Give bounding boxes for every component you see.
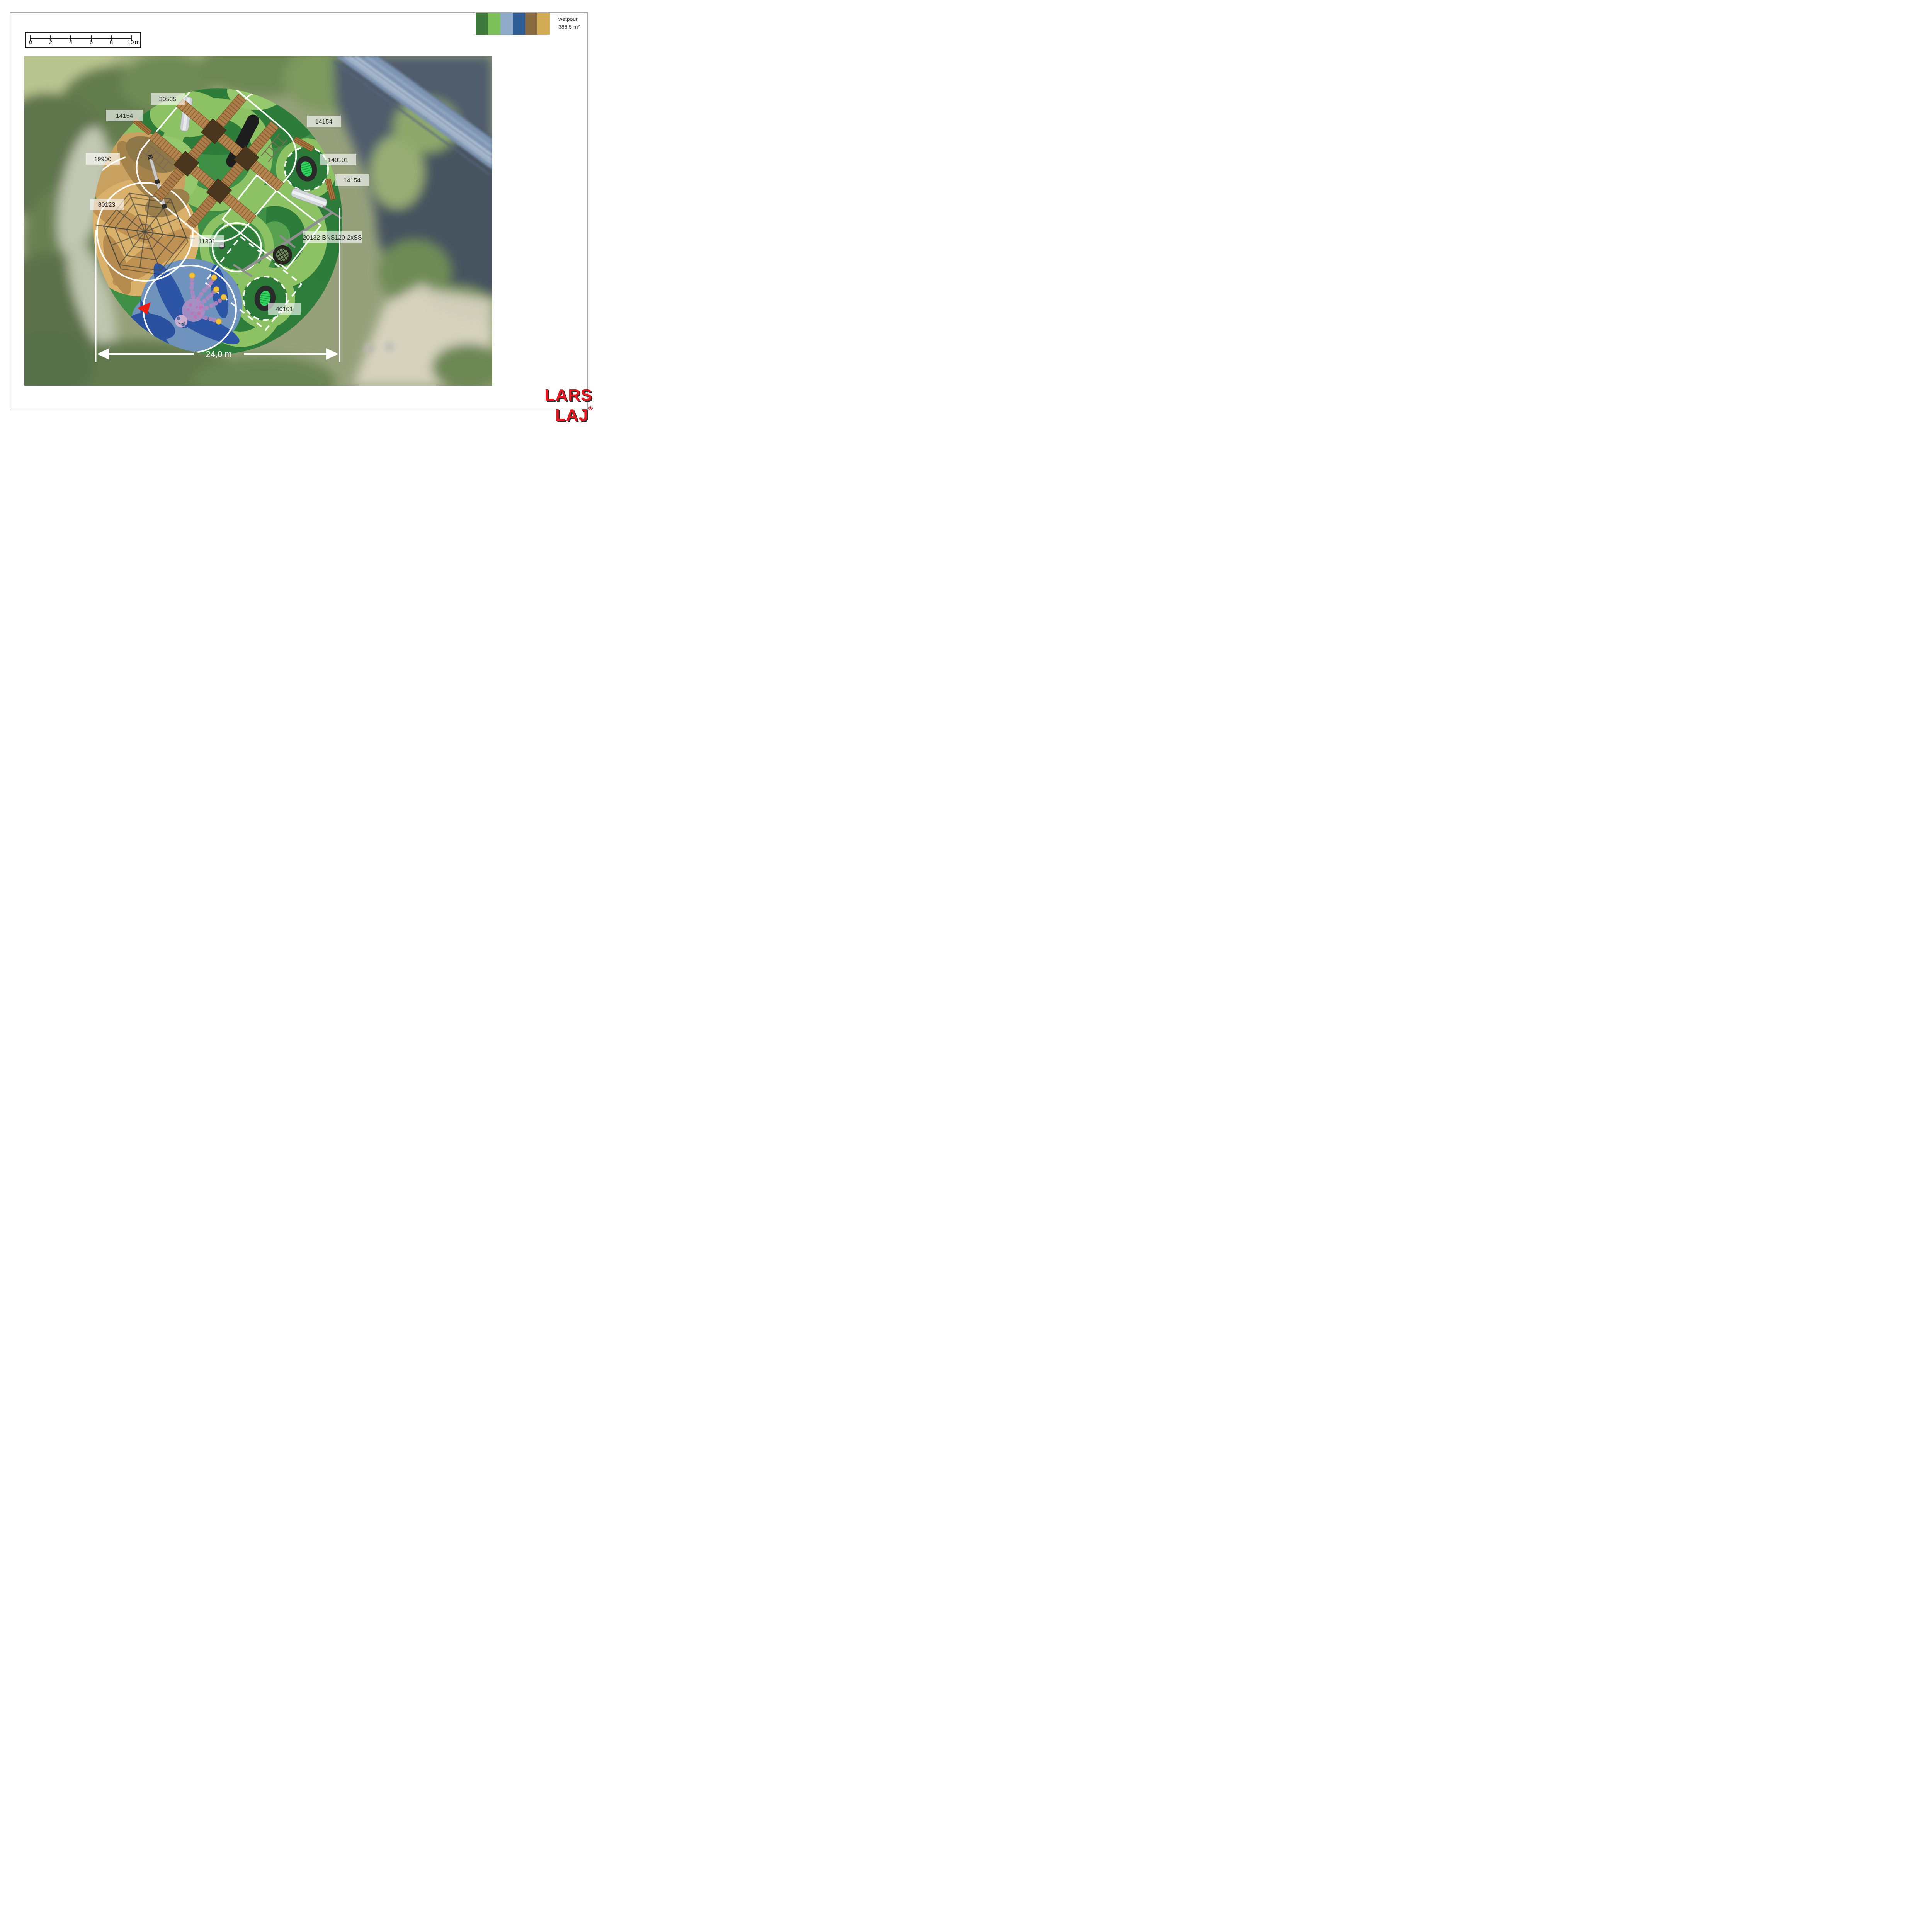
legend-swatch-brown — [525, 13, 537, 35]
scale-tick-label: 0 — [29, 39, 32, 46]
scale-tick-label: 8 — [110, 39, 113, 46]
product-label-14154-right: 14154 — [335, 174, 369, 186]
svg-text:11301: 11301 — [199, 238, 215, 245]
svg-text:40101: 40101 — [276, 306, 293, 313]
svg-text:80123: 80123 — [98, 202, 116, 208]
product-label-14154-top-left: 14154 — [106, 110, 143, 121]
scale-unit-label: m — [135, 39, 140, 46]
site-plan-map: 24,0 m 30535 14154 14154 19900 140101 14… — [24, 56, 492, 386]
product-label-11301: 11301 — [190, 235, 224, 247]
legend-surface-area: 388,5 m² — [558, 23, 580, 31]
legend-surface-name: wetpour — [558, 15, 580, 23]
legend-swatches — [476, 13, 550, 35]
legend-swatch-sand — [537, 13, 550, 35]
svg-text:30535: 30535 — [159, 96, 177, 103]
scale-tick-label: 6 — [90, 39, 93, 46]
svg-text:19900: 19900 — [94, 156, 112, 163]
legend-swatch-light-green — [488, 13, 500, 35]
site-plan-canvas: 24,0 m 30535 14154 14154 19900 140101 14… — [24, 56, 492, 386]
product-label-30535: 30535 — [151, 93, 185, 105]
product-label-80123: 80123 — [90, 199, 124, 210]
scale-bar: 0 2 4 6 8 10 m — [25, 32, 141, 48]
product-label-20132-bns120: 20132-BNS120-2xSS — [303, 231, 362, 243]
legend-swatch-dark-green — [476, 13, 488, 35]
legend-swatch-dark-blue — [513, 13, 525, 35]
lars-laj-logo-text: LARS LAJ — [544, 386, 592, 423]
legend-swatch-mottled-blue — [500, 13, 513, 35]
lars-laj-logo: LARS LAJ® — [505, 386, 592, 423]
dimension-label: 24,0 m — [206, 349, 231, 359]
product-label-19900: 19900 — [86, 153, 120, 165]
scale-tick-label: 4 — [69, 39, 72, 46]
svg-text:14154: 14154 — [315, 119, 333, 125]
svg-text:140101: 140101 — [328, 157, 348, 163]
svg-text:20132-BNS120-2xSS: 20132-BNS120-2xSS — [303, 235, 362, 241]
surface-legend: wetpour 388,5 m² — [476, 13, 580, 35]
scale-tick-label: 2 — [49, 39, 52, 46]
product-label-140101: 140101 — [320, 154, 356, 165]
registered-trademark-icon: ® — [588, 405, 592, 411]
product-label-40101: 40101 — [268, 303, 301, 315]
plan-sheet: 0 2 4 6 8 10 m wetpour 388,5 m² — [0, 0, 598, 423]
scale-bar-line — [30, 38, 132, 39]
product-label-14154-top-right: 14154 — [307, 116, 341, 127]
svg-text:14154: 14154 — [116, 113, 133, 119]
svg-text:14154: 14154 — [344, 177, 361, 184]
scale-tick-label: 10 — [128, 39, 134, 46]
